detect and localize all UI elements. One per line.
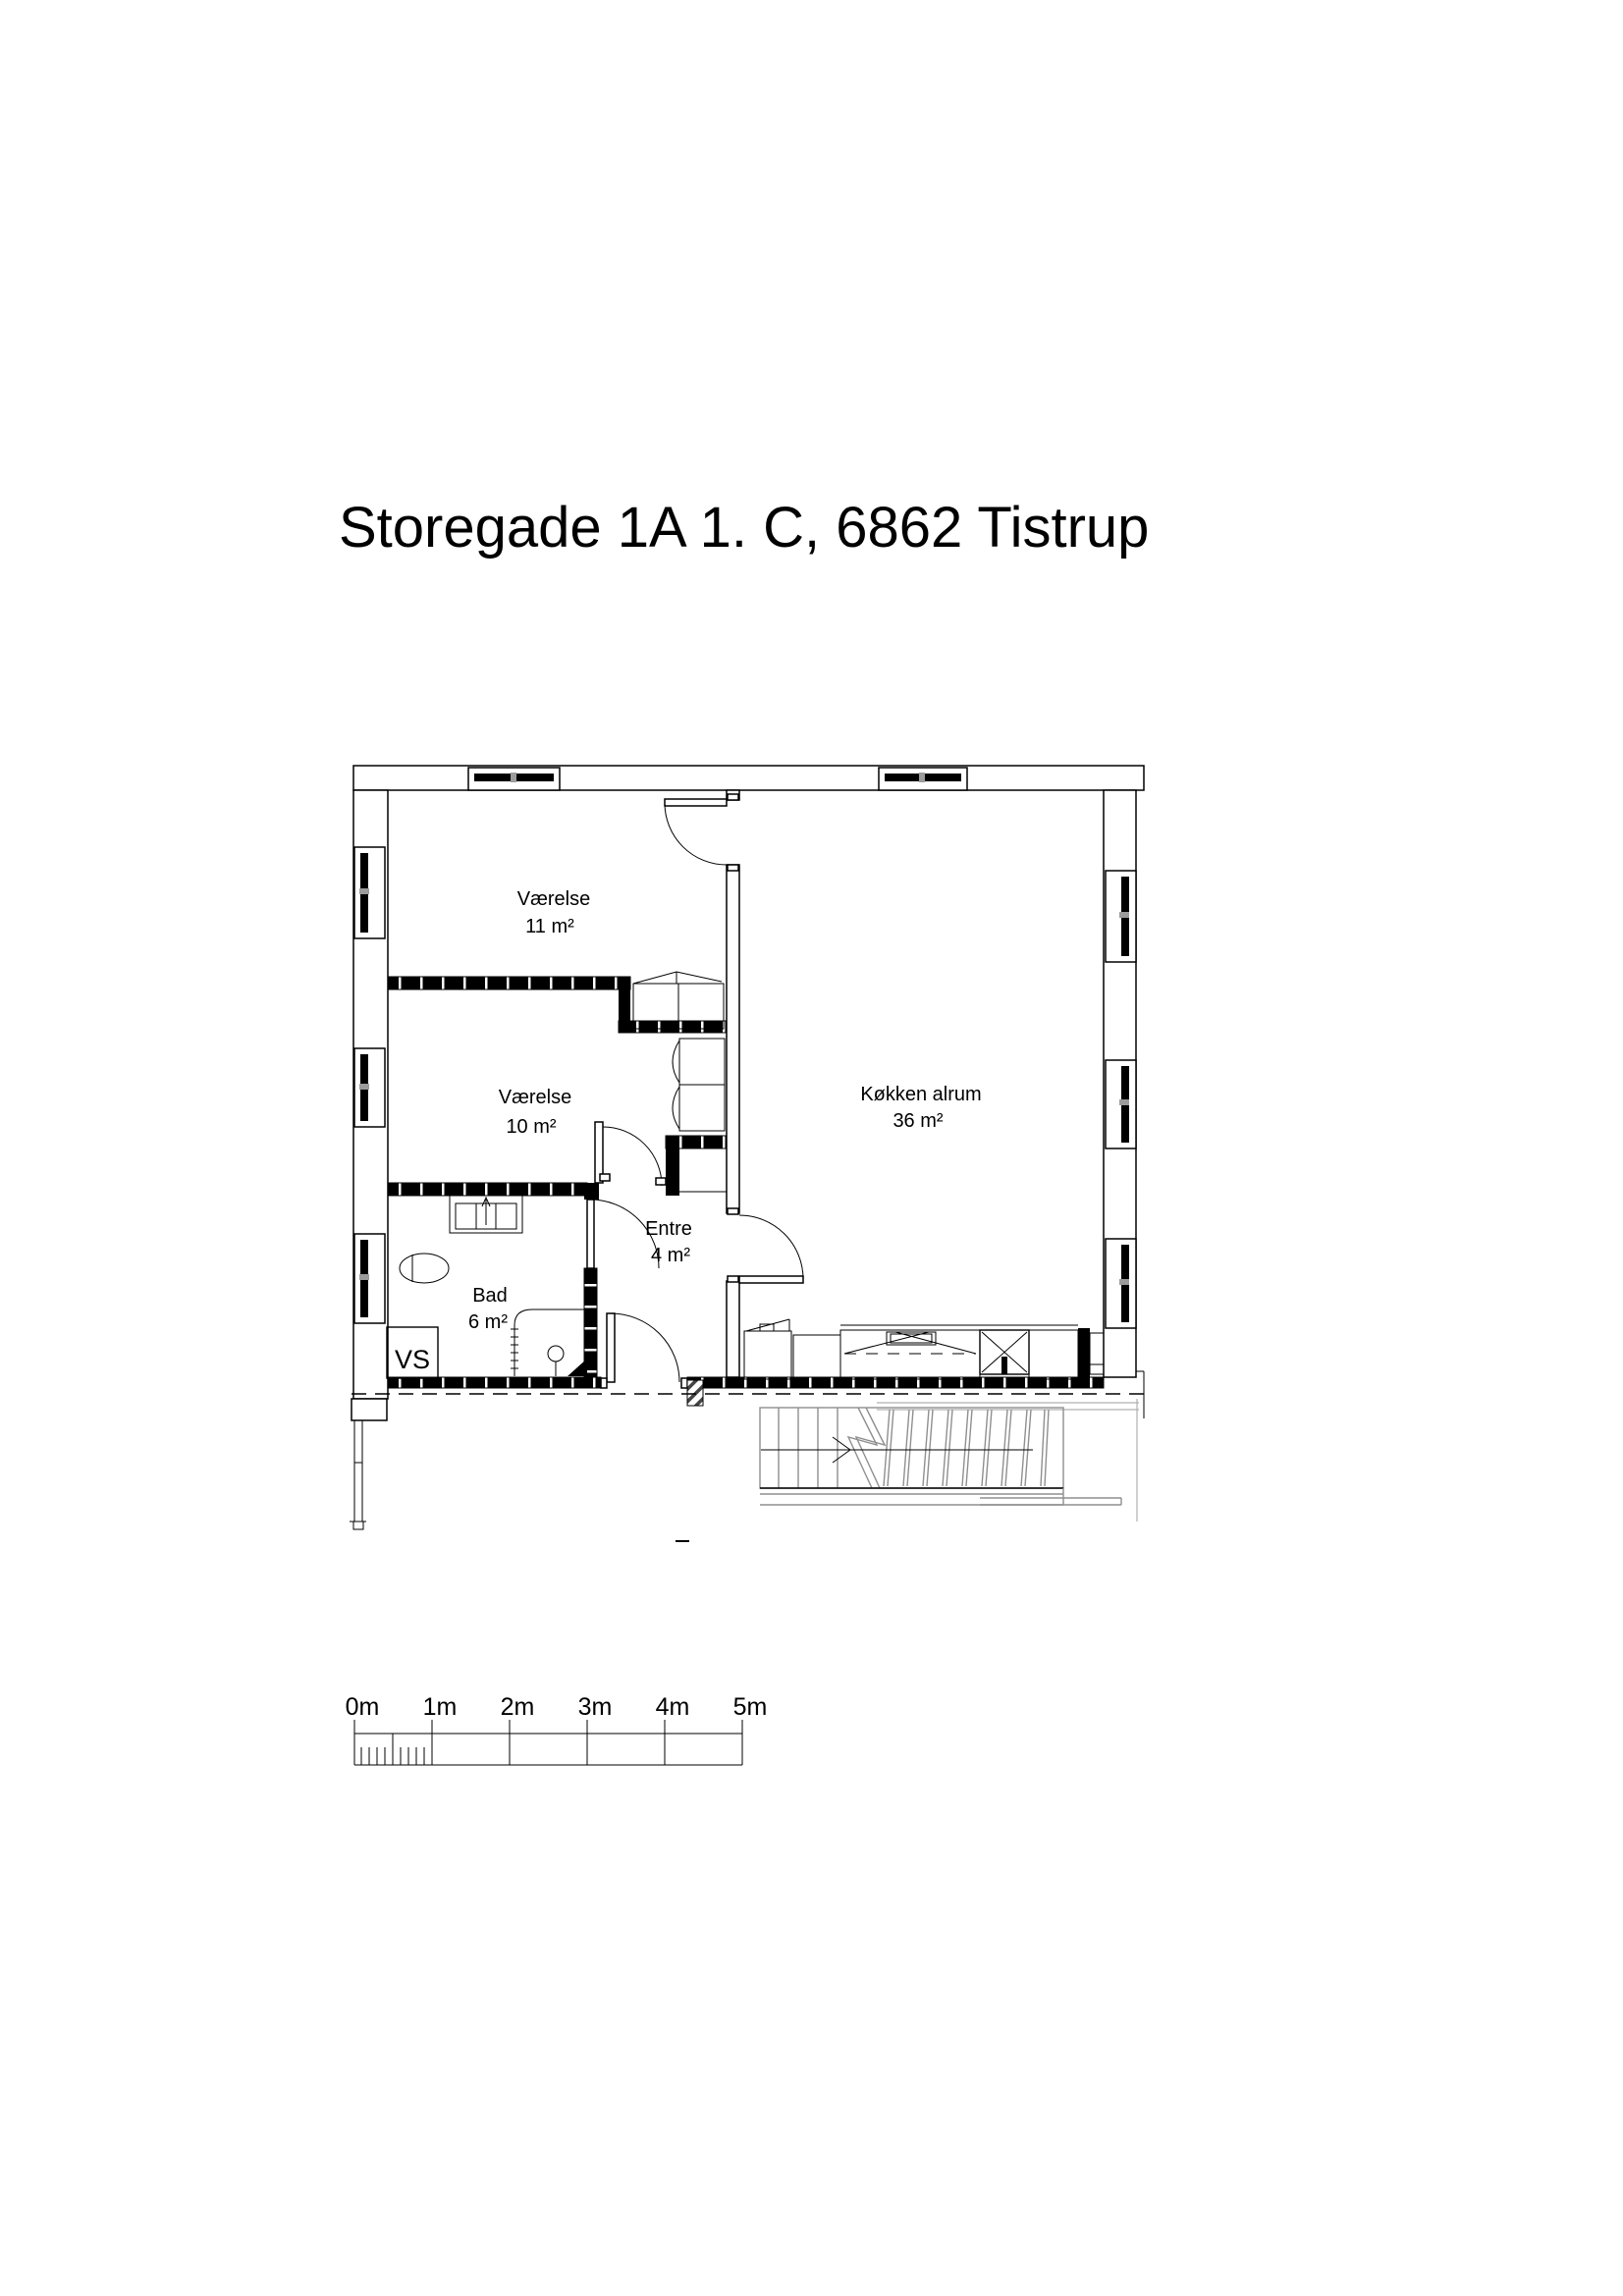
room-name: Bad <box>472 1285 508 1307</box>
room-area: 10 m² <box>506 1116 556 1138</box>
scale-ruler <box>354 1734 742 1765</box>
vs-shaft: VS <box>387 1327 438 1378</box>
scale-label: 5m <box>733 1693 768 1721</box>
cabinet-unit <box>793 1335 840 1377</box>
entrance-door <box>601 1313 687 1388</box>
kitchen-sink-icon <box>840 1330 980 1379</box>
door <box>595 1122 666 1186</box>
page-title: Storegade 1A 1. C, 6862 Tistrup <box>339 496 1149 560</box>
built-in-cabinets <box>633 972 725 1131</box>
toilet-icon <box>400 1254 449 1283</box>
central-wall <box>727 865 739 1213</box>
door <box>665 794 738 871</box>
stair-treads <box>884 1410 1049 1486</box>
room-name: Entre <box>645 1218 692 1240</box>
room-name: Værelse <box>517 888 590 910</box>
floor-plan-page: Storegade 1A 1. C, 6862 Tistrup <box>0 0 1623 2296</box>
partition-wall <box>666 1148 679 1196</box>
sink-vanity-icon <box>450 1196 522 1233</box>
partition-wall <box>619 1021 727 1033</box>
stair-direction-arrow <box>761 1437 1033 1463</box>
window <box>468 768 560 790</box>
window <box>879 768 967 790</box>
partition-wall <box>666 1136 727 1148</box>
partition-wall <box>388 1183 587 1196</box>
stair-break-line <box>848 1408 885 1488</box>
scale-label: 0m <box>346 1693 380 1721</box>
door <box>728 1208 803 1283</box>
room-area: 4 m² <box>651 1245 690 1266</box>
staircase <box>760 1403 1139 1505</box>
room-area: 11 m² <box>525 916 574 937</box>
room-name: Køkken alrum <box>860 1084 981 1105</box>
lower-exterior-wall <box>350 1399 1137 1541</box>
window <box>1106 871 1136 962</box>
window <box>1106 1239 1136 1328</box>
scale-label: 4m <box>656 1693 690 1721</box>
threshold <box>687 1380 703 1406</box>
stair-enclosure <box>760 1408 1063 1488</box>
partition-wall <box>388 977 630 989</box>
room-area: 36 m² <box>893 1110 943 1132</box>
counter-return <box>1078 1328 1104 1379</box>
wall-corner <box>584 1183 599 1200</box>
floor-plan-drawing: Storegade 1A 1. C, 6862 Tistrup <box>0 0 1623 2296</box>
scale-label: 3m <box>578 1693 613 1721</box>
counter-section <box>1029 1330 1078 1379</box>
window <box>354 847 385 938</box>
fridge-icon <box>744 1319 791 1379</box>
vs-label: VS <box>395 1345 430 1374</box>
room-name: Værelse <box>499 1087 571 1108</box>
room-area: 6 m² <box>468 1311 508 1333</box>
window <box>354 1048 385 1127</box>
window <box>354 1234 385 1323</box>
kitchen-counter <box>744 1319 1104 1379</box>
scale-bar: 0m 1m 2m 3m 4m 5m <box>346 1693 768 1765</box>
scale-label: 1m <box>423 1693 458 1721</box>
scale-label: 2m <box>501 1693 535 1721</box>
stair-treads <box>779 1408 838 1488</box>
scale-ticks <box>354 1720 742 1734</box>
cupboard-door-swing <box>633 972 722 984</box>
stove-icon <box>980 1330 1029 1374</box>
shower-icon <box>511 1309 587 1376</box>
doors <box>587 794 803 1406</box>
central-wall <box>727 1281 739 1377</box>
window <box>1106 1060 1136 1148</box>
windows <box>354 768 1136 1328</box>
